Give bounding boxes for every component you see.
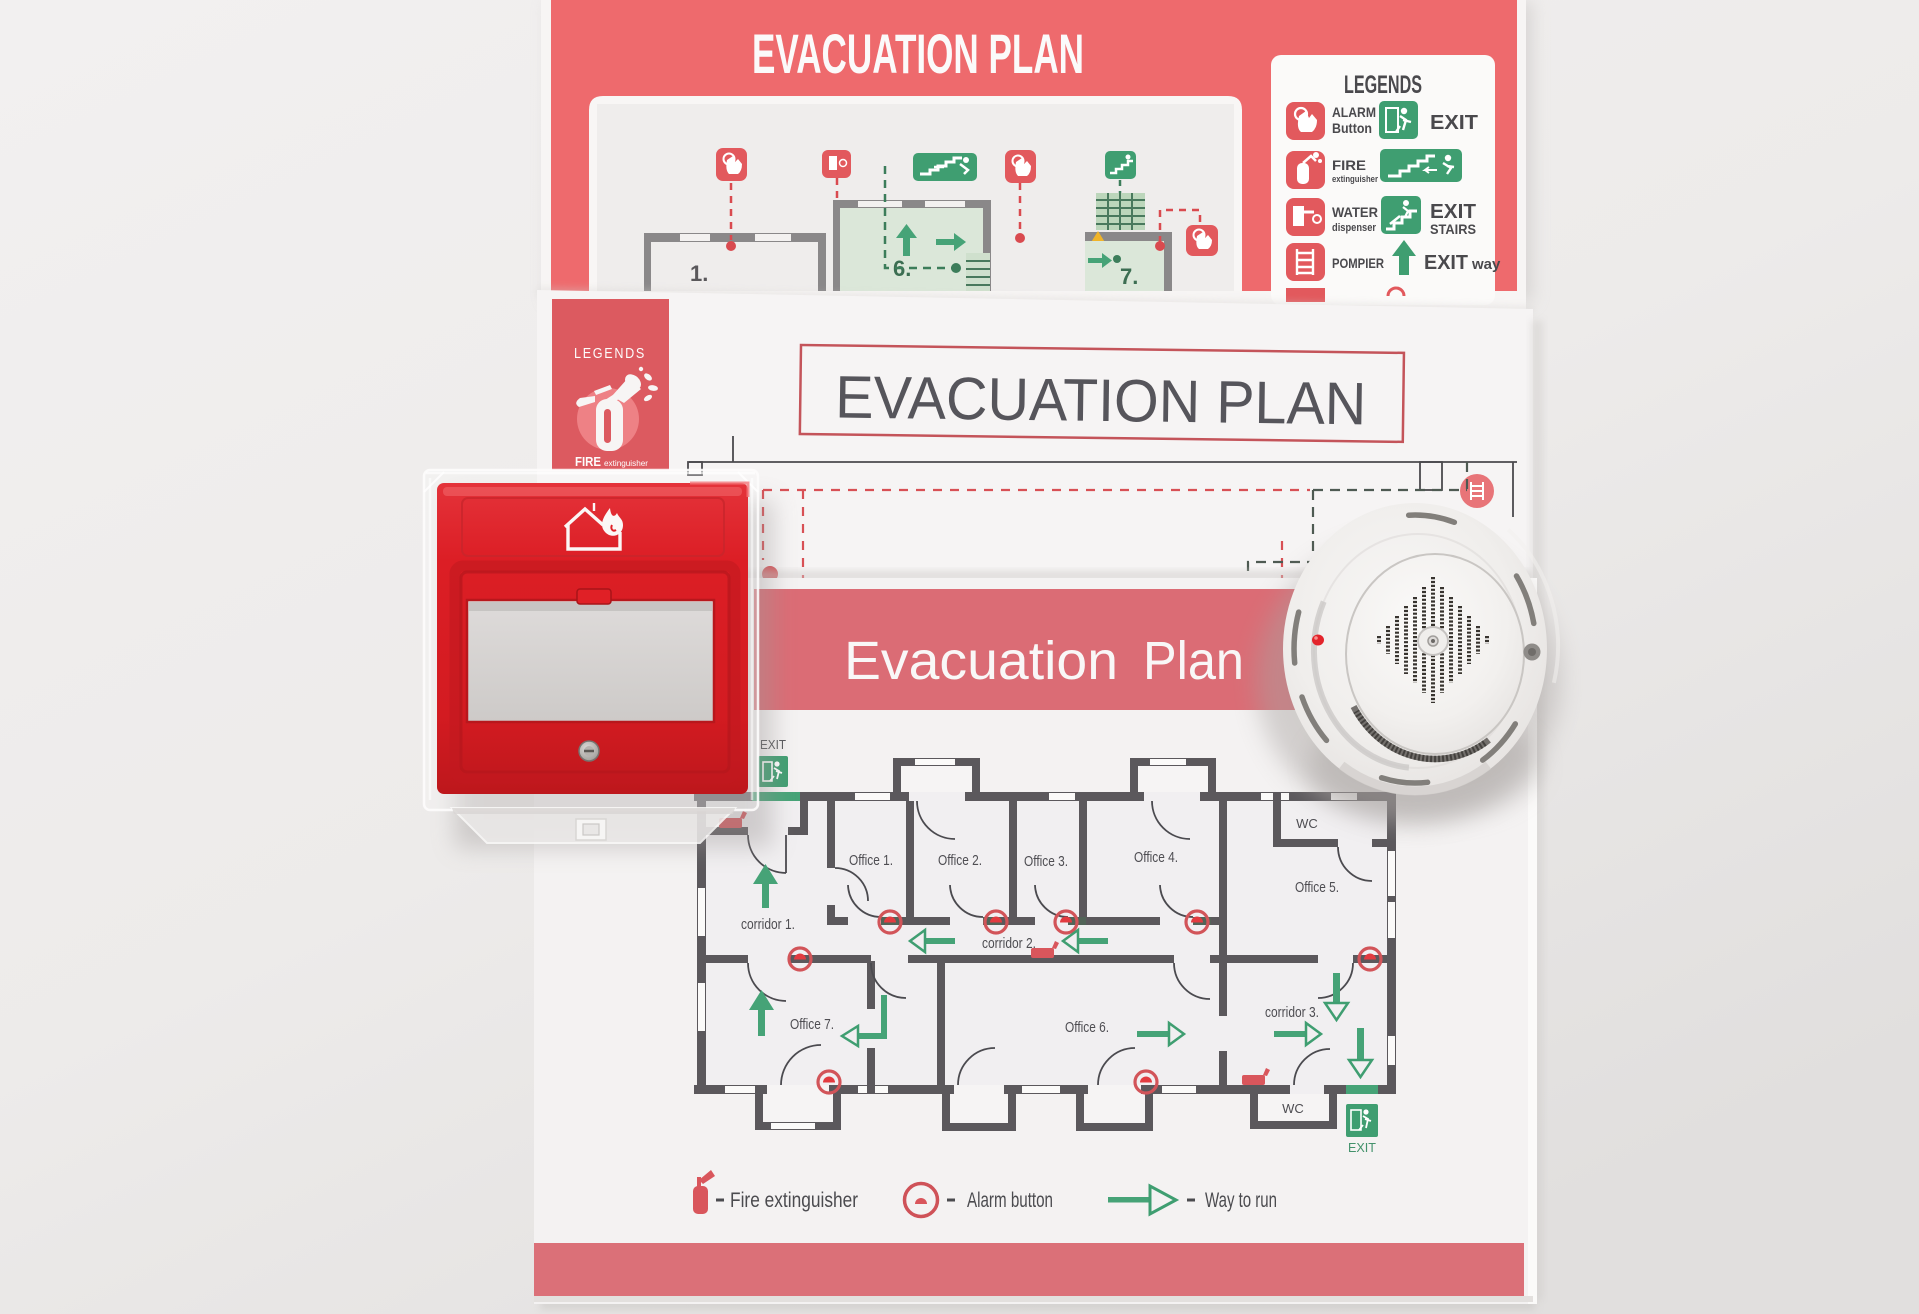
svg-text:corridor 3.: corridor 3. xyxy=(1265,1005,1319,1021)
svg-text:Office 2.: Office 2. xyxy=(938,853,982,869)
svg-text:STAIRS: STAIRS xyxy=(1430,221,1476,237)
svg-text:EXIT: EXIT xyxy=(1430,201,1476,223)
svg-text:Office 1.: Office 1. xyxy=(849,853,893,869)
svg-text:corridor 1.: corridor 1. xyxy=(741,917,795,933)
svg-text:EXIT: EXIT xyxy=(1348,1140,1376,1155)
svg-text:LEGENDS: LEGENDS xyxy=(574,345,646,362)
svg-text:EVACUATION PLAN: EVACUATION PLAN xyxy=(752,22,1084,85)
svg-text:Plan: Plan xyxy=(1143,631,1244,691)
svg-text:7.: 7. xyxy=(1120,264,1138,289)
svg-text:POMPIER: POMPIER xyxy=(1332,255,1384,271)
svg-text:EXIT: EXIT xyxy=(1430,112,1478,134)
svg-text:Way to run: Way to run xyxy=(1205,1189,1277,1212)
svg-text:corridor 2.: corridor 2. xyxy=(982,936,1036,952)
svg-text:WC: WC xyxy=(1296,816,1318,831)
svg-text:dispenser: dispenser xyxy=(1332,222,1377,234)
svg-text:WATER: WATER xyxy=(1332,204,1378,220)
svg-text:LEGENDS: LEGENDS xyxy=(1344,71,1422,99)
svg-text:extinguisher: extinguisher xyxy=(1332,174,1378,185)
svg-text:Office 4.: Office 4. xyxy=(1134,850,1178,866)
svg-text:Alarm button: Alarm button xyxy=(967,1189,1053,1212)
svg-text:Evacuation: Evacuation xyxy=(844,631,1118,691)
svg-text:Button: Button xyxy=(1332,120,1372,136)
svg-text:Office 5.: Office 5. xyxy=(1295,880,1339,896)
svg-text:WC: WC xyxy=(1282,1101,1304,1116)
svg-text:EVACUATION PLAN: EVACUATION PLAN xyxy=(835,363,1367,437)
svg-text:Fire extinguisher: Fire extinguisher xyxy=(730,1189,858,1212)
svg-text:FIRE: FIRE xyxy=(1332,157,1366,173)
svg-text:ALARM: ALARM xyxy=(1332,104,1376,120)
svg-text:Office 6.: Office 6. xyxy=(1065,1020,1109,1036)
svg-text:way: way xyxy=(1471,256,1501,273)
svg-text:1.: 1. xyxy=(690,261,708,286)
svg-text:Office 7.: Office 7. xyxy=(790,1017,834,1033)
svg-text:Office 3.: Office 3. xyxy=(1024,854,1068,870)
svg-text:EXIT: EXIT xyxy=(1424,252,1468,274)
svg-text:extinguisher: extinguisher xyxy=(604,459,648,468)
svg-text:FIRE: FIRE xyxy=(575,454,601,469)
